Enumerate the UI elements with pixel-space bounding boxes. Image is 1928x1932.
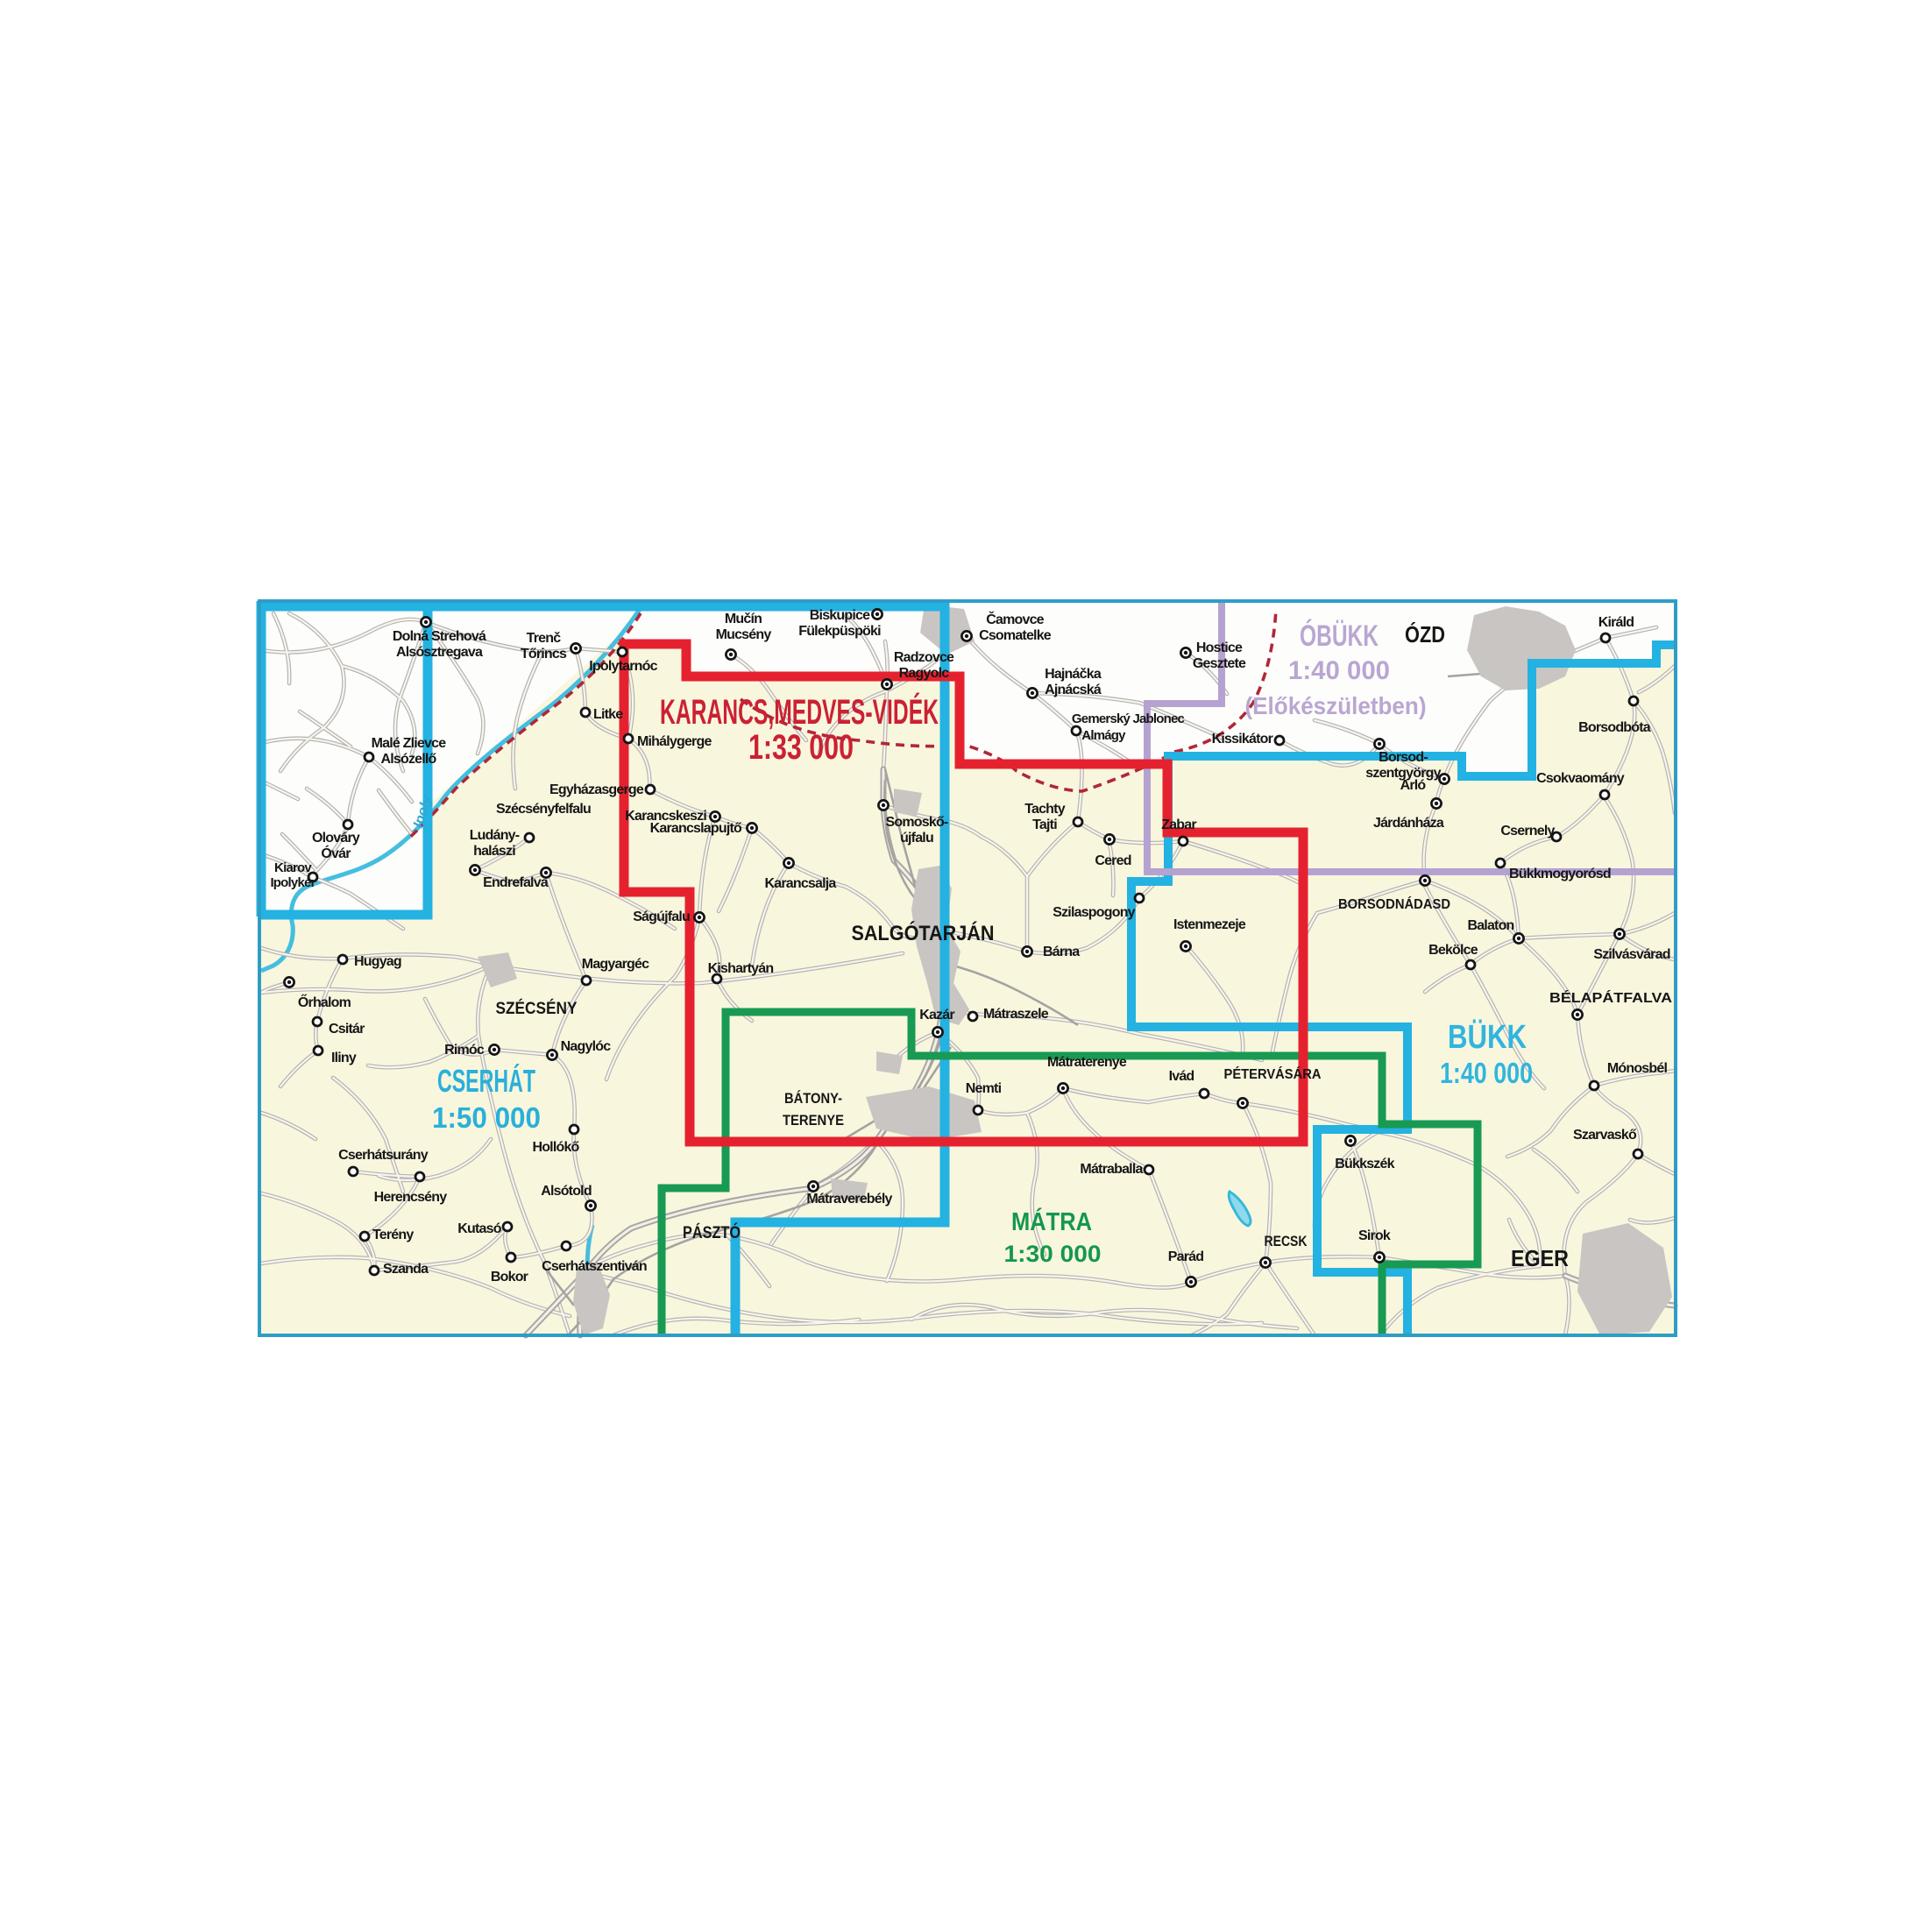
svg-text:Hollókő: Hollókő — [532, 1140, 579, 1155]
svg-text:Radzovce: Radzovce — [894, 650, 954, 665]
svg-text:ÓBÜKK: ÓBÜKK — [1300, 619, 1379, 653]
svg-text:KARANCS,MEDVES-VIDÉK: KARANCS,MEDVES-VIDÉK — [660, 692, 939, 732]
svg-text:Kutasó: Kutasó — [457, 1221, 501, 1236]
svg-text:CSERHÁT: CSERHÁT — [437, 1063, 535, 1099]
svg-text:Ipolykér: Ipolykér — [270, 875, 315, 890]
svg-text:Magyargéc: Magyargéc — [582, 957, 649, 972]
svg-text:Ajnácská: Ajnácská — [1045, 683, 1102, 697]
svg-text:Járdánháza: Járdánháza — [1373, 816, 1444, 831]
svg-text:ÓZD: ÓZD — [1405, 621, 1445, 648]
svg-text:Karancslapujtő: Karancslapujtő — [650, 821, 742, 836]
svg-text:Szanda: Szanda — [383, 1262, 429, 1277]
svg-text:Gesztete: Gesztete — [1193, 656, 1246, 671]
svg-text:Hajnáčka: Hajnáčka — [1045, 667, 1102, 682]
svg-text:Őrhalom: Őrhalom — [298, 994, 351, 1010]
svg-text:Csitár: Csitár — [329, 1022, 365, 1037]
svg-text:1:50 000: 1:50 000 — [432, 1101, 541, 1134]
svg-text:Mónosbél: Mónosbél — [1607, 1061, 1668, 1076]
svg-text:Csomatelke: Csomatelke — [979, 628, 1052, 643]
svg-text:Karancsalja: Karancsalja — [764, 876, 836, 891]
svg-text:Bárna: Bárna — [1043, 945, 1080, 959]
svg-text:Alsósztregava: Alsósztregava — [396, 645, 483, 660]
svg-text:újfalu: újfalu — [900, 831, 933, 846]
svg-text:Csokvaomány: Csokvaomány — [1536, 771, 1625, 786]
svg-text:Nagylóc: Nagylóc — [561, 1039, 612, 1054]
svg-text:Olováry: Olováry — [312, 831, 360, 846]
svg-text:Čamovce: Čamovce — [986, 611, 1044, 627]
svg-text:1:33 000: 1:33 000 — [748, 728, 854, 767]
svg-text:1:40 000: 1:40 000 — [1288, 656, 1390, 685]
svg-text:MÁTRA: MÁTRA — [1011, 1207, 1092, 1236]
svg-text:Malé Zlievce: Malé Zlievce — [372, 736, 447, 751]
svg-text:Gemerský Jablonec: Gemerský Jablonec — [1072, 711, 1185, 726]
svg-text:Borsodbóta: Borsodbóta — [1578, 720, 1651, 735]
svg-text:Tőrincs: Tőrincs — [521, 647, 567, 662]
svg-text:Zabar: Zabar — [1161, 817, 1196, 832]
svg-text:Balaton: Balaton — [1467, 918, 1513, 933]
svg-text:Ragyolc: Ragyolc — [899, 666, 950, 681]
svg-text:Parád: Parád — [1168, 1249, 1203, 1264]
svg-text:BORSODNÁDASD: BORSODNÁDASD — [1338, 895, 1450, 912]
svg-text:Királd: Királd — [1598, 615, 1634, 630]
svg-text:Kazár: Kazár — [919, 1008, 954, 1023]
svg-text:Cserhátsurány: Cserhátsurány — [338, 1148, 429, 1163]
svg-text:Mihálygerge: Mihálygerge — [637, 734, 712, 749]
svg-text:1:40 000: 1:40 000 — [1440, 1057, 1533, 1089]
svg-text:BÉLAPÁTFALVA: BÉLAPÁTFALVA — [1549, 989, 1672, 1006]
svg-text:Biskupice: Biskupice — [810, 608, 870, 623]
svg-text:Szilvásvárad: Szilvásvárad — [1593, 947, 1669, 962]
svg-text:Mátraballa: Mátraballa — [1080, 1162, 1143, 1177]
svg-text:Hostice: Hostice — [1196, 640, 1243, 655]
svg-text:(Előkészületben): (Előkészületben) — [1245, 692, 1427, 719]
svg-text:Cered: Cered — [1095, 853, 1131, 868]
svg-text:Alsótold: Alsótold — [541, 1184, 592, 1199]
svg-text:Szilaspogony: Szilaspogony — [1053, 905, 1135, 920]
svg-text:Litke: Litke — [593, 707, 623, 722]
svg-text:Ságújfalu: Ságújfalu — [633, 909, 690, 924]
svg-text:Szécsényfelfalu: Szécsényfelfalu — [496, 802, 591, 817]
svg-text:Rimóc: Rimóc — [444, 1043, 485, 1058]
svg-text:Ivád: Ivád — [1169, 1069, 1194, 1084]
svg-text:Bekölce: Bekölce — [1428, 943, 1478, 958]
svg-text:Bükkszék: Bükkszék — [1335, 1157, 1394, 1171]
svg-text:Alsózellő: Alsózellő — [380, 752, 436, 767]
svg-text:Bükkmogyorósd: Bükkmogyorósd — [1509, 867, 1611, 881]
svg-text:Ipolytarnóc: Ipolytarnóc — [589, 659, 657, 674]
svg-text:Cserhátszentiván: Cserhátszentiván — [542, 1259, 647, 1274]
svg-text:Herencsény: Herencsény — [374, 1190, 448, 1205]
svg-text:Almágy: Almágy — [1081, 728, 1126, 743]
svg-text:TERENYE: TERENYE — [783, 1112, 844, 1129]
svg-text:Terény: Terény — [372, 1228, 414, 1242]
svg-text:Mucsény: Mucsény — [716, 627, 772, 642]
svg-text:BÁTONY-: BÁTONY- — [784, 1090, 842, 1107]
svg-text:Mátraterenye: Mátraterenye — [1047, 1055, 1127, 1070]
svg-text:Istenmezeje: Istenmezeje — [1173, 917, 1246, 932]
svg-text:SALGÓTARJÁN: SALGÓTARJÁN — [852, 921, 995, 945]
svg-text:Mučín: Mučín — [725, 612, 762, 626]
svg-text:Trenč: Trenč — [527, 631, 562, 646]
svg-text:SZÉCSÉNY: SZÉCSÉNY — [496, 999, 578, 1018]
svg-text:Hugyag: Hugyag — [354, 954, 401, 969]
svg-text:PÉTERVÁSÁRA: PÉTERVÁSÁRA — [1224, 1065, 1322, 1082]
svg-text:RECSK: RECSK — [1265, 1233, 1308, 1249]
svg-text:Dolná Strehová: Dolná Strehová — [393, 629, 486, 644]
svg-text:Iliny: Iliny — [331, 1051, 357, 1065]
svg-text:Endrefalva: Endrefalva — [483, 875, 549, 890]
svg-text:Bokor: Bokor — [491, 1270, 528, 1284]
svg-text:Kishartyán: Kishartyán — [708, 961, 774, 976]
svg-text:EGER: EGER — [1511, 1245, 1569, 1271]
svg-text:Tachty: Tachty — [1024, 802, 1065, 817]
svg-text:Sirok: Sirok — [1358, 1228, 1391, 1243]
svg-text:Mátraszele: Mátraszele — [983, 1007, 1049, 1022]
svg-text:Kissikátor: Kissikátor — [1212, 732, 1273, 747]
svg-text:1:30 000: 1:30 000 — [1004, 1241, 1102, 1267]
svg-text:Nemti: Nemti — [966, 1081, 1002, 1096]
svg-text:Fülekpüspöki: Fülekpüspöki — [798, 624, 881, 639]
svg-text:Ludány-: Ludány- — [470, 828, 520, 843]
svg-text:BÜKK: BÜKK — [1448, 1018, 1527, 1056]
svg-text:Kiarov: Kiarov — [274, 860, 312, 875]
svg-text:Csernely: Csernely — [1500, 824, 1555, 839]
svg-text:PÁSZTÓ: PÁSZTÓ — [683, 1223, 741, 1242]
svg-text:Egyházasgerge: Egyházasgerge — [549, 782, 644, 797]
svg-text:Szarvaskő: Szarvaskő — [1573, 1128, 1637, 1143]
svg-text:Tajti: Tajti — [1032, 817, 1057, 832]
svg-text:halászi: halászi — [473, 844, 515, 859]
svg-text:Arló: Arló — [1400, 778, 1427, 793]
svg-text:Óvár: Óvár — [321, 845, 351, 861]
svg-text:Somoskő-: Somoskő- — [886, 815, 948, 830]
svg-text:Borsod-: Borsod- — [1379, 750, 1428, 765]
svg-text:Mátraverebély: Mátraverebély — [806, 1192, 892, 1207]
